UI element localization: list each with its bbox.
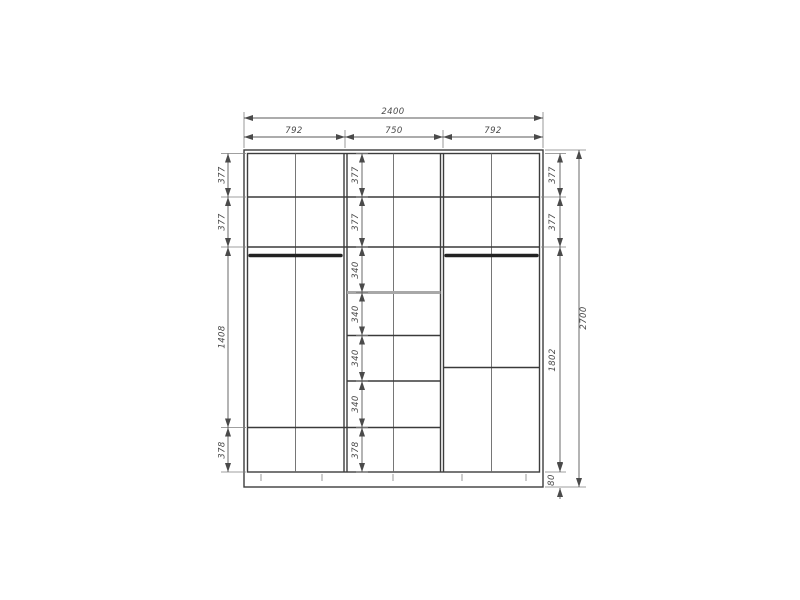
dimension-lines	[228, 118, 579, 499]
label-left-2: 377	[218, 213, 228, 231]
label-right-1: 377	[548, 166, 558, 184]
label-left-1: 377	[218, 166, 228, 184]
label-left-4: 378	[218, 441, 228, 459]
label-right-2: 377	[548, 213, 558, 231]
label-right-3: 1802	[548, 348, 558, 371]
label-middle-6: 340	[351, 395, 361, 412]
label-overall-width: 2400	[381, 107, 404, 117]
label-middle-5: 340	[351, 349, 361, 366]
label-middle-4: 340	[351, 305, 361, 322]
label-section-3: 792	[484, 126, 501, 136]
cabinet-structure	[244, 150, 543, 487]
wardrobe-dimension-drawing: 2400 792 750 792 377 377 1408 378 377 37…	[0, 0, 800, 600]
dimension-labels: 2400 792 750 792 377 377 1408 378 377 37…	[218, 107, 590, 486]
label-middle-3: 340	[351, 261, 361, 278]
label-section-2: 750	[385, 126, 402, 136]
label-middle-2: 377	[351, 213, 361, 231]
label-middle-7: 378	[351, 441, 361, 459]
drawing-page: 2400 792 750 792 377 377 1408 378 377 37…	[0, 0, 800, 600]
label-section-1: 792	[285, 126, 302, 136]
label-overall-height: 2700	[579, 306, 589, 329]
label-middle-1: 377	[351, 166, 361, 184]
label-left-3: 1408	[218, 325, 228, 348]
extension-lines	[221, 112, 586, 487]
label-right-4: 80	[547, 474, 557, 486]
